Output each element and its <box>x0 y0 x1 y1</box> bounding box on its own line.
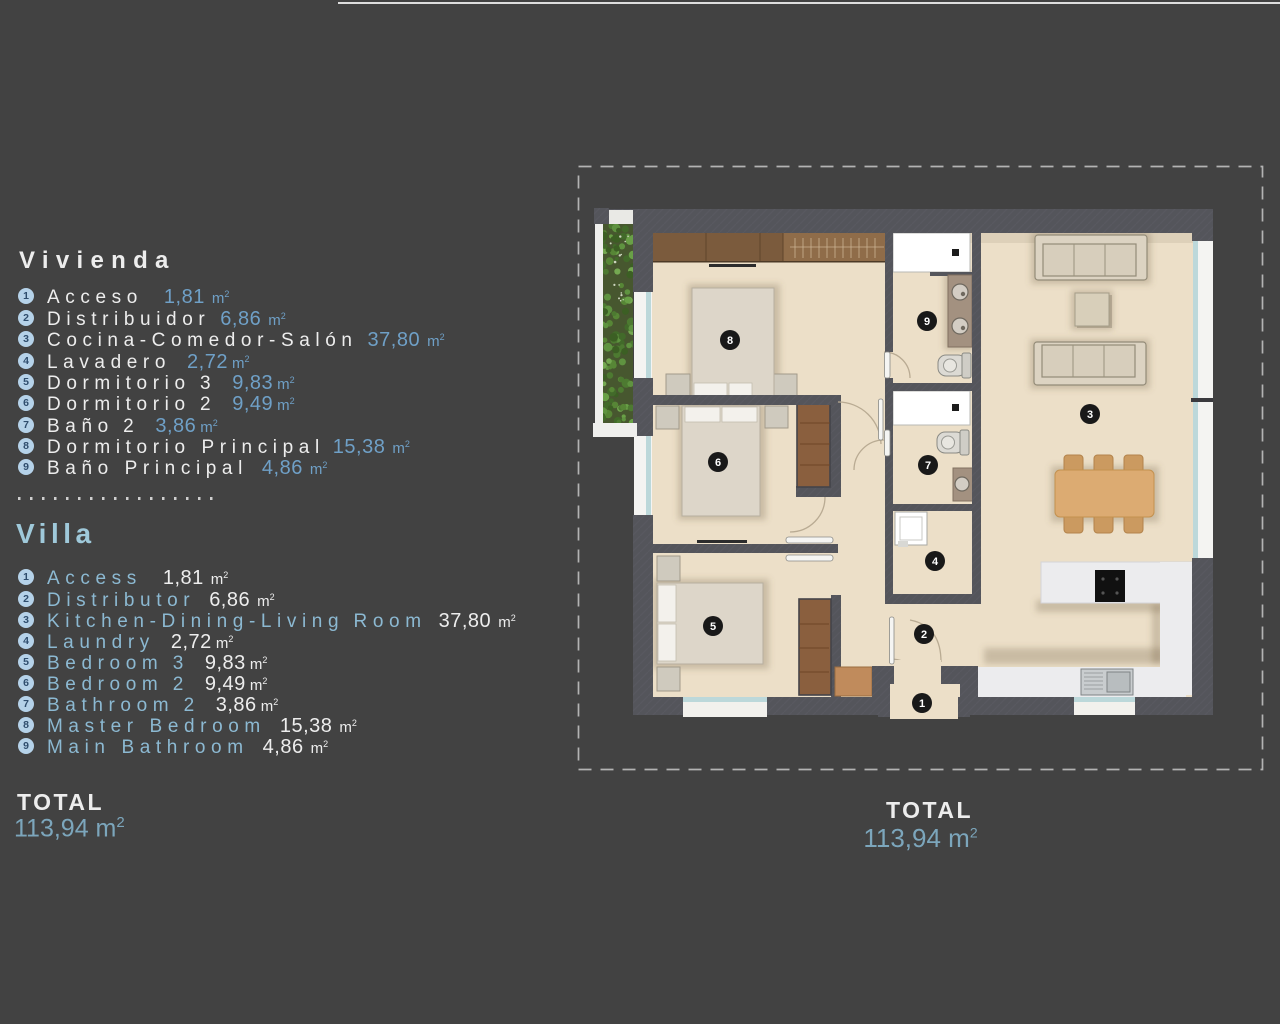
svg-text:2: 2 <box>921 629 927 641</box>
svg-text:8: 8 <box>727 335 733 347</box>
svg-text:3: 3 <box>1087 409 1093 421</box>
svg-text:9: 9 <box>924 316 930 328</box>
svg-text:6: 6 <box>715 457 721 469</box>
svg-text:1: 1 <box>919 698 925 710</box>
svg-text:4: 4 <box>932 556 939 568</box>
svg-text:7: 7 <box>925 460 931 472</box>
svg-text:5: 5 <box>710 621 716 633</box>
